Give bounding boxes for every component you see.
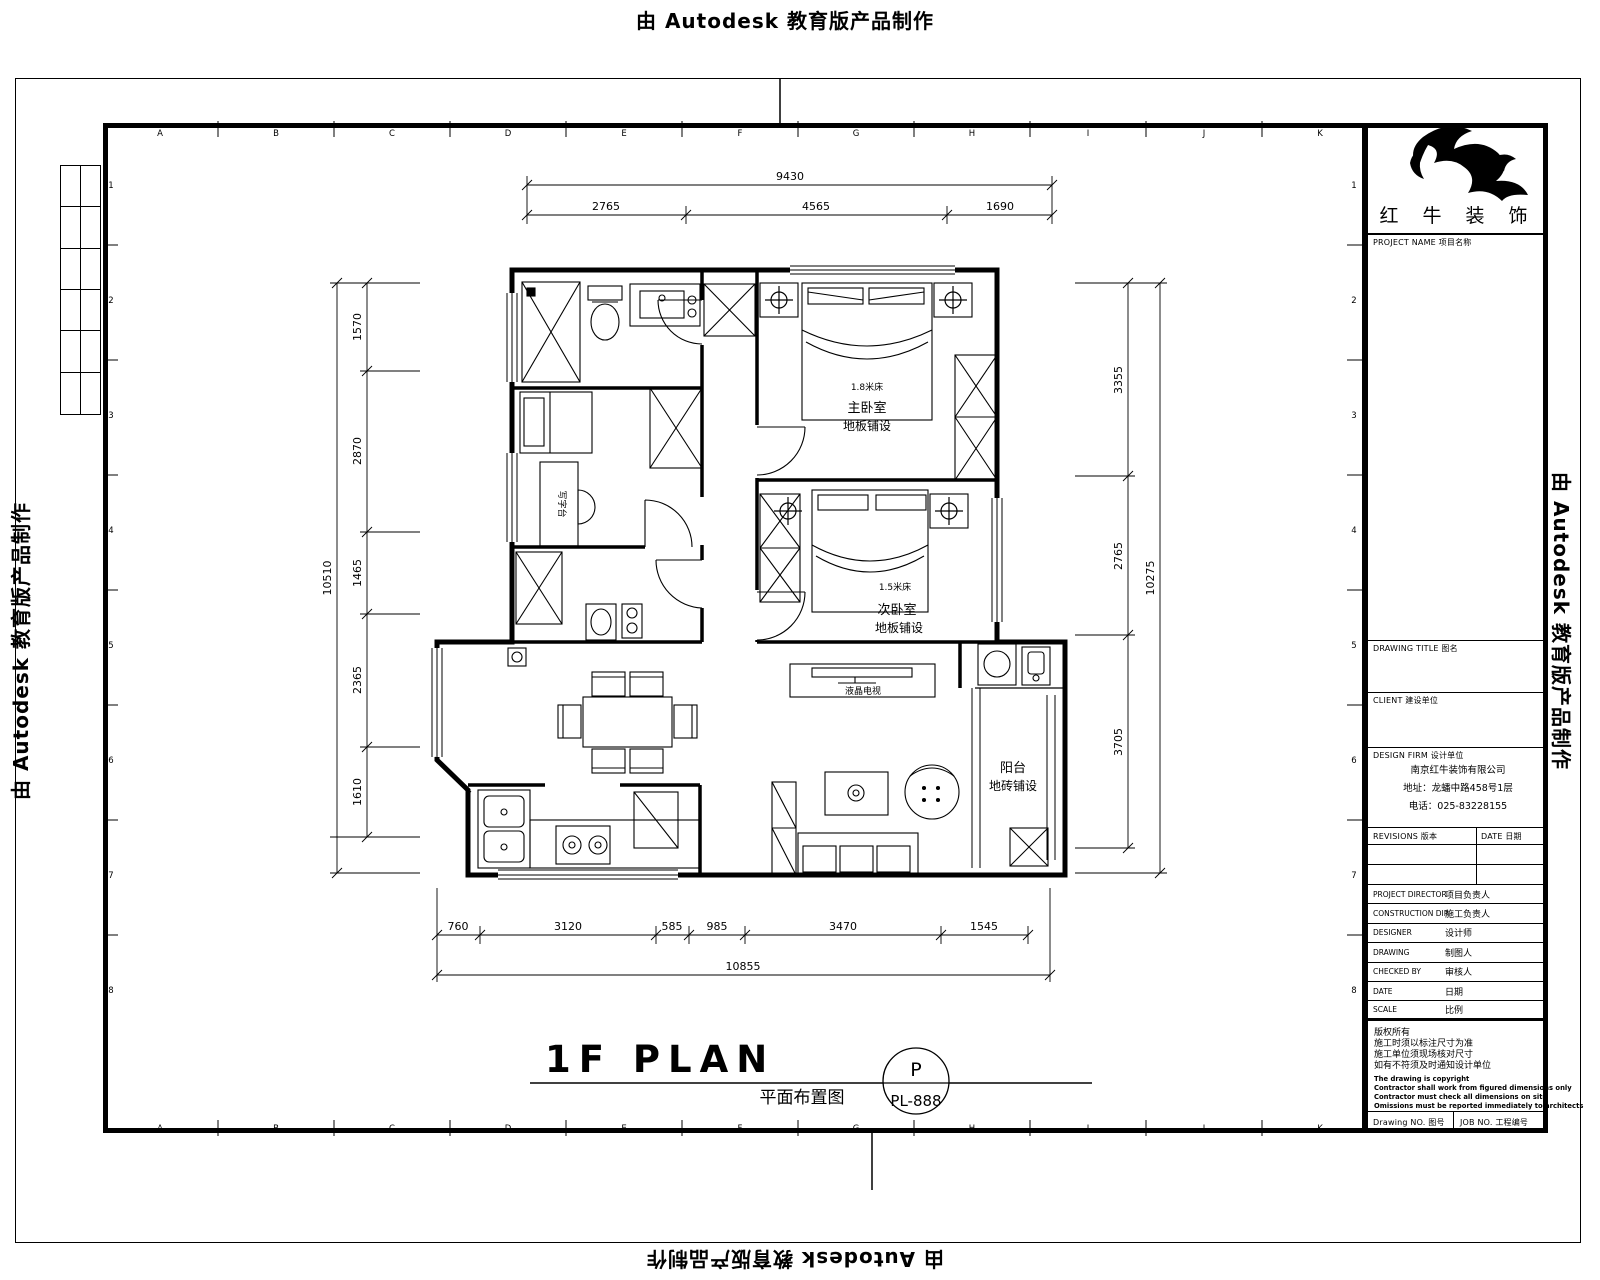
interior-walls [468, 270, 997, 875]
svg-text:D: D [505, 1124, 512, 1134]
dining-chair [630, 672, 663, 696]
dim-value: 9430 [776, 170, 804, 183]
plan-subtitle: 平面布置图 [760, 1088, 845, 1108]
window-second-right [990, 498, 1004, 622]
dining-chair [592, 749, 625, 773]
svg-text:B: B [273, 129, 279, 139]
svg-text:8: 8 [1351, 986, 1356, 996]
svg-text:F: F [738, 1124, 743, 1134]
washbasin-counter [630, 284, 700, 326]
washbasin-2 [586, 604, 616, 640]
drawing-number-stamp: P PL-888 [883, 1048, 949, 1114]
dim-value: 985 [707, 920, 728, 933]
dim-value: 2765 [1112, 542, 1125, 570]
grid-numbers-right: 1 2 3 4 5 6 7 8 [1351, 181, 1356, 996]
svg-text:6: 6 [108, 756, 113, 766]
svg-text:G: G [853, 129, 860, 139]
svg-text:D: D [505, 129, 512, 139]
kitchen-counter [478, 790, 530, 868]
grid-letters-top: A B C D E F G H I J K [157, 129, 1323, 139]
svg-text:I: I [1087, 129, 1090, 139]
dining-chair [674, 705, 697, 738]
svg-text:H: H [969, 129, 975, 139]
tv-label: 液晶电视 [845, 685, 881, 697]
second-room-label: 次卧室 [877, 602, 916, 618]
svg-text:A: A [157, 129, 163, 139]
child-room-furniture: 写字台 [520, 388, 702, 546]
dim-value: 1570 [351, 313, 364, 341]
svg-text:K: K [1317, 129, 1323, 139]
toilet [588, 286, 622, 340]
grid-ticks-sides [103, 245, 1362, 935]
dim-value: 3120 [554, 920, 582, 933]
dim-value: 3470 [829, 920, 857, 933]
svg-text:4: 4 [108, 526, 113, 536]
window-bathroom-left [505, 293, 519, 382]
dimension-texts: 9430 2765 4565 1690 10510 1570 2870 1465… [321, 170, 1157, 973]
stamp-number: PL-888 [890, 1092, 941, 1110]
light-symbol [765, 286, 793, 314]
dim-value: 10275 [1144, 561, 1157, 596]
kitchen-furniture [478, 790, 700, 868]
balcony-floor-drain [1010, 828, 1048, 866]
drawing-sheet: 由 Autodesk 教育版产品制作 由 Autodesk 教育版产品制作 由 … [0, 0, 1600, 1280]
master-finish-label: 地板铺设 [843, 419, 891, 433]
svg-text:J: J [1202, 1124, 1206, 1134]
window-bay-diagonal [435, 757, 471, 792]
svg-text:A: A [157, 1124, 163, 1134]
dim-value: 585 [662, 920, 683, 933]
master-room-label: 主卧室 [847, 400, 886, 416]
dining-chair [592, 672, 625, 696]
second-finish-label: 地板铺设 [875, 621, 923, 635]
door-bathroom [658, 300, 702, 344]
svg-text:6: 6 [1351, 756, 1356, 766]
armchair [905, 765, 959, 819]
dining-chair [558, 705, 581, 738]
svg-text:E: E [621, 1124, 626, 1134]
door-guest-bath [656, 560, 702, 608]
dim-value: 1690 [986, 200, 1014, 213]
svg-text:C: C [389, 1124, 395, 1134]
mop-sink [1022, 647, 1050, 685]
dim-value: 760 [448, 920, 469, 933]
svg-text:1: 1 [108, 181, 113, 191]
dim-value: 2870 [351, 437, 364, 465]
second-bed-label: 1.5米床 [879, 581, 911, 593]
svg-text:J: J [1202, 129, 1206, 139]
svg-text:5: 5 [108, 641, 113, 651]
kitchen-sink [484, 796, 524, 862]
corridor-closet [704, 284, 755, 336]
dim-value: 10510 [321, 561, 334, 596]
svg-text:2: 2 [108, 296, 113, 306]
window-kitchen-bottom [498, 868, 678, 882]
desk-label: 写字台 [556, 490, 568, 517]
dim-value: 1465 [351, 559, 364, 587]
grid-numbers-left: 1 2 3 4 5 6 7 8 [108, 181, 113, 996]
gas-stove [556, 826, 610, 864]
light-symbol [939, 286, 967, 314]
plan-title: 1F PLAN [545, 1038, 775, 1081]
light-symbol [774, 497, 802, 525]
svg-text:1: 1 [1351, 181, 1356, 191]
svg-text:B: B [273, 1124, 279, 1134]
room-labels: 1.8米床 主卧室 地板铺设 1.5米床 次卧室 地板铺设 阳台 地砖铺设 [843, 381, 1037, 793]
dim-value: 2365 [351, 666, 364, 694]
doors [645, 300, 805, 640]
svg-text:4: 4 [1351, 526, 1356, 536]
svg-text:K: K [1317, 1124, 1323, 1134]
dim-value: 1610 [351, 778, 364, 806]
svg-text:3: 3 [108, 411, 113, 421]
windows [430, 264, 1063, 882]
double-bed-15 [812, 490, 928, 612]
master-bedroom-furniture [760, 283, 997, 480]
grid-letters-bottom: A B C D E F G H I J K [157, 1124, 1323, 1134]
dim-left [330, 278, 420, 878]
plan-title-group: 1F PLAN 平面布置图 P PL-888 [530, 1038, 1092, 1114]
toilet-2 [622, 604, 642, 638]
master-wardrobe [955, 355, 997, 480]
washing-machine [978, 644, 1016, 685]
door-child-room [645, 500, 692, 547]
balcony-finish-label: 地砖铺设 [989, 778, 1037, 793]
balcony-items [978, 644, 1050, 866]
side-cabinet [772, 782, 796, 875]
second-bedroom-furniture [760, 490, 968, 612]
single-bed [520, 392, 592, 453]
svg-text:8: 8 [108, 986, 113, 996]
svg-text:I: I [1087, 1124, 1090, 1134]
balcony-room-label: 阳台 [1000, 761, 1026, 776]
svg-text:5: 5 [1351, 641, 1356, 651]
door-master [757, 427, 805, 475]
dim-value: 1545 [970, 920, 998, 933]
living-room-furniture: 液晶电视 [772, 664, 959, 875]
svg-text:7: 7 [108, 871, 113, 881]
svg-text:7: 7 [1351, 871, 1356, 881]
window-balcony-right [1047, 695, 1063, 860]
fridge [634, 792, 678, 848]
dining-table [583, 697, 672, 747]
dim-value: 10855 [726, 960, 761, 973]
coffee-table [825, 772, 888, 815]
shower-stall [522, 282, 580, 382]
stamp-letter: P [910, 1059, 921, 1081]
svg-text:G: G [853, 1124, 860, 1134]
light-symbol [935, 497, 963, 525]
centering-marks [780, 78, 872, 1190]
svg-text:2: 2 [1351, 296, 1356, 306]
dim-value: 2765 [592, 200, 620, 213]
wardrobe [650, 388, 702, 468]
dim-value: 4565 [802, 200, 830, 213]
dim-value: 3705 [1112, 728, 1125, 756]
dimension-lines [330, 176, 1167, 982]
window-child-left [505, 453, 519, 542]
sofa [798, 833, 918, 875]
svg-text:F: F [738, 129, 743, 139]
floor-plan-canvas: A B C D E F G H I J K A B C D E F G [0, 0, 1600, 1280]
svg-text:C: C [389, 129, 395, 139]
desk-chair [578, 490, 595, 524]
window-master-top [790, 264, 955, 276]
dining-furniture [558, 672, 697, 773]
dining-chair [630, 749, 663, 773]
flue-box [508, 648, 526, 666]
svg-text:3: 3 [1351, 411, 1356, 421]
dim-value: 3355 [1112, 366, 1125, 394]
double-bed-18 [802, 283, 932, 420]
svg-text:E: E [621, 129, 626, 139]
master-bed-label: 1.8米床 [851, 381, 883, 393]
window-balcony-left [972, 688, 980, 868]
guest-bath-fixtures [516, 552, 642, 640]
shower-stall-2 [516, 552, 562, 624]
svg-text:H: H [969, 1124, 975, 1134]
bathroom-fixtures [522, 282, 700, 382]
window-dining-left [430, 648, 444, 757]
